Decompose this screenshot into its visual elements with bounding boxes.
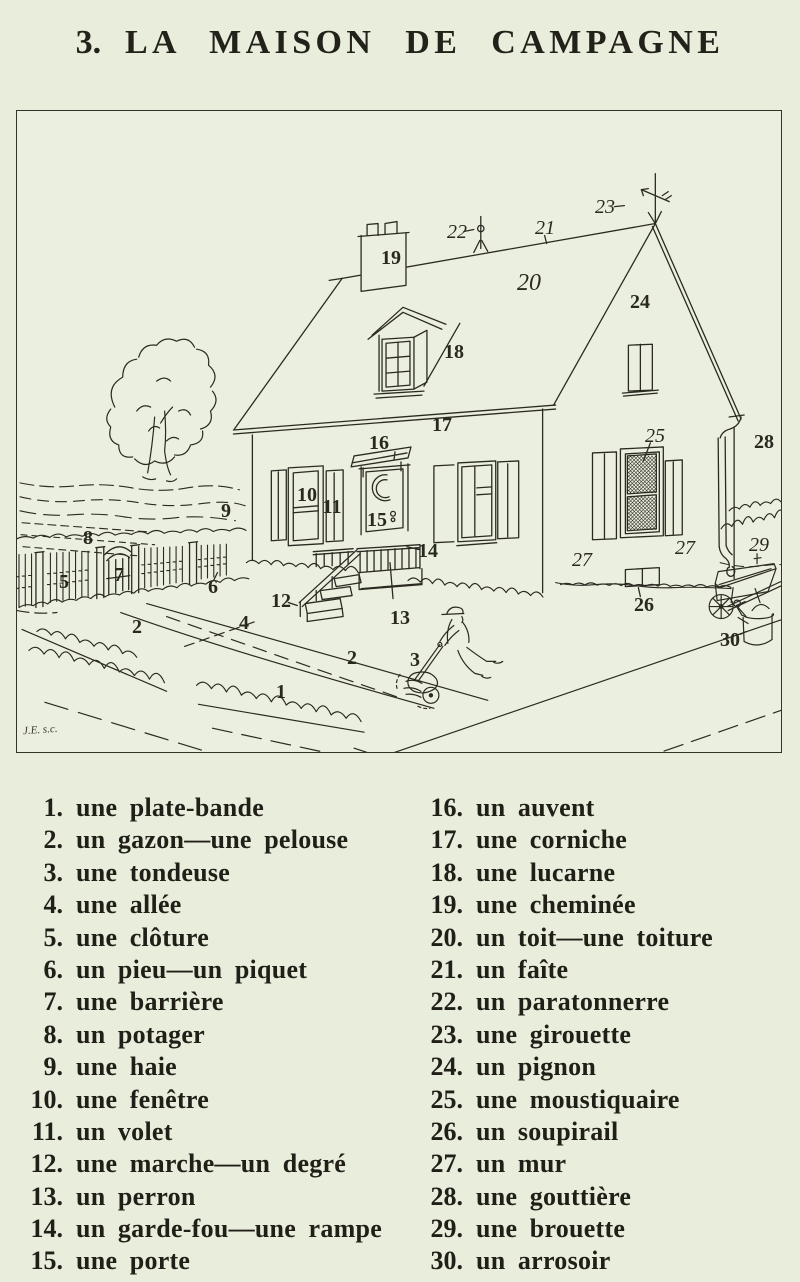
vocab-number: 1. [15, 792, 63, 824]
tree [107, 339, 216, 482]
vocab-term: un volet [76, 1117, 173, 1146]
vocab-number: 4. [15, 889, 63, 921]
vocab-number: 10. [15, 1084, 63, 1116]
vocab-item: 14.un garde-fou—une rampe [15, 1213, 382, 1245]
vocab-item: 7.une barrière [15, 986, 382, 1018]
vocab-term: une fenêtre [76, 1085, 209, 1114]
vocab-number: 14. [15, 1213, 63, 1245]
figure-label-10: 10 [297, 485, 317, 505]
screen-window [592, 443, 682, 540]
gutter-downspout [718, 415, 744, 576]
vocab-term: une clôture [76, 923, 209, 952]
lesson-title: LA MAISON DE CAMPAGNE [125, 24, 724, 61]
vocab-term: une barrière [76, 987, 224, 1016]
vocab-item: 30.un arrosoir [415, 1245, 713, 1277]
vocab-number: 24. [415, 1051, 463, 1083]
vocab-number: 17. [415, 824, 463, 856]
vocab-term: un pieu—un piquet [76, 955, 307, 984]
vocab-term: un toit—une toiture [476, 923, 713, 952]
vocab-number: 15. [15, 1245, 63, 1277]
vocab-item: 18.une lucarne [415, 857, 713, 889]
house-illustration [17, 111, 781, 752]
vocab-item: 12.une marche—un degré [15, 1148, 382, 1180]
vocab-term: un auvent [476, 793, 595, 822]
figure-label-19: 19 [381, 248, 401, 268]
vocab-item: 4.une allée [15, 889, 382, 921]
vocab-number: 21. [415, 954, 463, 986]
vocab-item: 16.un auvent [415, 792, 713, 824]
figure-label-1: 1 [276, 682, 286, 702]
vocab-term: une tondeuse [76, 858, 230, 887]
figure-label-21: 21 [535, 218, 555, 238]
vocab-number: 30. [415, 1245, 463, 1277]
figure-label-27: 27 [675, 538, 695, 558]
vocab-item: 3.une tondeuse [15, 857, 382, 889]
vocab-term: un soupirail [476, 1117, 619, 1146]
vocab-item: 21.un faîte [415, 954, 713, 986]
vocab-term: une allée [76, 890, 182, 919]
vocab-number: 5. [15, 922, 63, 954]
vocab-item: 17.une corniche [415, 824, 713, 856]
figure-label-16: 16 [369, 433, 389, 453]
vocab-item: 26.un soupirail [415, 1116, 713, 1148]
right-window [434, 461, 519, 546]
vocab-number: 23. [415, 1019, 463, 1051]
vocab-term: un paratonnerre [476, 987, 669, 1016]
vocab-number: 28. [415, 1181, 463, 1213]
figure-label-11: 11 [323, 497, 342, 517]
page-title: 3.LA MAISON DE CAMPAGNE [0, 24, 800, 62]
figure-label-23: 23 [595, 197, 615, 217]
vocab-number: 16. [415, 792, 463, 824]
figure-label-6: 6 [208, 577, 218, 597]
vocab-item: 11.un volet [15, 1116, 382, 1148]
vocab-term: un faîte [476, 955, 568, 984]
house-illustration-frame: 1223456789101112131415161718192021222324… [16, 110, 782, 753]
figure-label-22: 22 [447, 222, 467, 242]
figure-label-24: 24 [630, 292, 650, 312]
vocab-number: 19. [415, 889, 463, 921]
vocab-number: 27. [415, 1148, 463, 1180]
hedge-rows [20, 483, 245, 521]
vocab-number: 25. [415, 1084, 463, 1116]
vocab-number: 18. [415, 857, 463, 889]
vocab-item: 22.un paratonnerre [415, 986, 713, 1018]
figure-label-18: 18 [444, 342, 464, 362]
figure-label-15: 15 [367, 510, 387, 530]
vocab-item: 10.une fenêtre [15, 1084, 382, 1116]
figure-label-3: 3 [410, 650, 420, 670]
vocab-item: 27.un mur [415, 1148, 713, 1180]
vocab-item: 9.une haie [15, 1051, 382, 1083]
vocab-number: 7. [15, 986, 63, 1018]
vocab-term: un perron [76, 1182, 196, 1211]
vocab-item: 5.une clôture [15, 922, 382, 954]
vocab-item: 15.une porte [15, 1245, 382, 1277]
vocab-term: une porte [76, 1246, 190, 1275]
figure-label-2: 2 [132, 617, 142, 637]
vocab-item: 23.une girouette [415, 1019, 713, 1051]
vocab-term: une marche—un degré [76, 1149, 346, 1178]
lesson-number: 3. [76, 24, 102, 61]
vocab-item: 19.une cheminée [415, 889, 713, 921]
lightning-rod [464, 217, 488, 253]
vocab-term: un potager [76, 1020, 205, 1049]
vocab-item: 29.une brouette [415, 1213, 713, 1245]
figure-label-13: 13 [390, 608, 410, 628]
figure-label-9: 9 [221, 501, 231, 521]
gable-window [622, 344, 658, 396]
vocab-term: un garde-fou—une rampe [76, 1214, 382, 1243]
vocab-term: une corniche [476, 825, 627, 854]
figure-label-14: 14 [418, 541, 438, 561]
vocab-item: 20.un toit—une toiture [415, 922, 713, 954]
vocab-term: une girouette [476, 1020, 631, 1049]
vocab-item: 24.un pignon [415, 1051, 713, 1083]
figure-label-17: 17 [432, 415, 452, 435]
roof-lines [233, 224, 741, 434]
figure-label-29: 29 [749, 535, 769, 555]
vocab-item: 25.une moustiquaire [415, 1084, 713, 1116]
vocab-term: une lucarne [476, 858, 615, 887]
vocab-number: 11. [15, 1116, 63, 1148]
vocab-term: un pignon [476, 1052, 596, 1081]
vocab-number: 13. [15, 1181, 63, 1213]
figure-label-4: 4 [239, 613, 249, 633]
basement-window [625, 568, 659, 597]
vocab-term: une cheminée [476, 890, 636, 919]
vocab-term: une gouttière [476, 1182, 631, 1211]
figure-label-2: 2 [347, 648, 357, 668]
figure-label-30: 30 [720, 630, 740, 650]
engraver-signature: J.E. s.c. [23, 723, 58, 737]
vocab-item: 8.un potager [15, 1019, 382, 1051]
vocab-term: une moustiquaire [476, 1085, 680, 1114]
vocab-number: 2. [15, 824, 63, 856]
figure-label-28: 28 [754, 432, 774, 452]
vocab-item: 13.un perron [15, 1181, 382, 1213]
vocab-term: un gazon—une pelouse [76, 825, 348, 854]
vocab-term: une haie [76, 1052, 177, 1081]
vocab-number: 3. [15, 857, 63, 889]
vocab-item: 1.une plate-bande [15, 792, 382, 824]
vocab-column-left: 1.une plate-bande2.un gazon—une pelouse3… [15, 792, 382, 1278]
vocab-number: 22. [415, 986, 463, 1018]
figure-label-27: 27 [572, 550, 592, 570]
vocab-term: un mur [476, 1149, 566, 1178]
vocab-item: 6.un pieu—un piquet [15, 954, 382, 986]
vocab-term: une plate-bande [76, 793, 264, 822]
vocab-number: 20. [415, 922, 463, 954]
figure-label-20: 20 [517, 271, 541, 295]
figure-label-12: 12 [271, 591, 291, 611]
vocab-number: 8. [15, 1019, 63, 1051]
vocab-number: 29. [415, 1213, 463, 1245]
figure-label-26: 26 [634, 595, 654, 615]
vocab-number: 9. [15, 1051, 63, 1083]
figure-label-5: 5 [59, 572, 69, 592]
vocab-term: un arrosoir [476, 1246, 611, 1275]
figure-label-8: 8 [83, 528, 93, 548]
vocab-item: 2.un gazon—une pelouse [15, 824, 382, 856]
vocab-number: 26. [415, 1116, 463, 1148]
vocab-number: 12. [15, 1148, 63, 1180]
vocab-item: 28.une gouttière [415, 1181, 713, 1213]
weathervane [614, 174, 671, 224]
vocab-number: 6. [15, 954, 63, 986]
vocab-column-right: 16.un auvent17.une corniche18.une lucarn… [415, 792, 713, 1278]
figure-label-25: 25 [645, 426, 665, 446]
figure-label-7: 7 [114, 565, 124, 585]
vocab-term: une brouette [476, 1214, 625, 1243]
